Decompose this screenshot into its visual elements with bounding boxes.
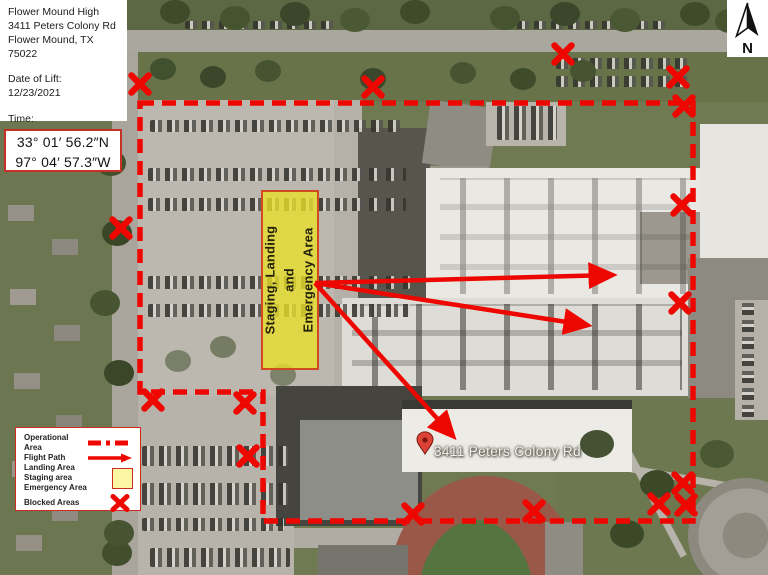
north-indicator: N xyxy=(727,0,768,57)
legend-row-landing: Landing Area Staging area Emergency Area xyxy=(24,463,133,493)
trees xyxy=(580,430,614,458)
site-info-box: Flower Mound High 3411 Peters Colony Rd … xyxy=(0,0,127,121)
street-label: 3411 Peters Colony Rd xyxy=(434,444,581,459)
north-arrow-icon: N xyxy=(727,0,768,57)
x-mark-symbol xyxy=(107,493,133,513)
staging-area-label: Staging, Landing and Emergency Area xyxy=(262,182,319,378)
staging-label-line3: Emergency Area xyxy=(299,182,318,378)
car-row xyxy=(185,21,335,29)
bleachers xyxy=(545,522,583,575)
dash-dot-line-symbol xyxy=(87,439,133,447)
car-row xyxy=(142,518,284,531)
date-of-lift-value: 12/23/2021 xyxy=(8,87,123,101)
roof-units xyxy=(440,178,690,294)
site-address-1: 3411 Peters Colony Rd xyxy=(8,20,123,34)
car-row xyxy=(742,302,754,417)
house-roofs xyxy=(8,205,34,221)
car-row xyxy=(556,58,690,69)
parked-cars xyxy=(497,106,557,140)
date-of-lift-label: Date of Lift: xyxy=(8,73,123,87)
staging-label-line1: Staging, Landing xyxy=(262,182,281,378)
latitude-value: 33° 01′ 56.2″N xyxy=(6,133,120,153)
car-row xyxy=(150,548,290,567)
lift-plan-map: Staging, Landing and Emergency Area 3411… xyxy=(0,0,768,575)
trees xyxy=(160,0,190,24)
staging-label-line2: and xyxy=(281,182,300,378)
site-address-2: Flower Mound, TX 75022 xyxy=(8,34,123,62)
car-row xyxy=(148,168,406,181)
legend-row-flight-path: Flight Path xyxy=(24,453,133,463)
site-name: Flower Mound High xyxy=(8,6,123,20)
legend-label-landing-area: Landing Area Staging area Emergency Area xyxy=(24,463,87,493)
arrow-symbol xyxy=(87,453,133,463)
building-right-white xyxy=(700,124,768,260)
legend-label-blocked-areas: Blocked Areas xyxy=(24,498,79,508)
legend-row-operational: Operational Area xyxy=(24,433,133,453)
north-label: N xyxy=(742,40,753,57)
longitude-value: 97° 04′ 57.3″W xyxy=(6,153,120,173)
legend-label-operational-area: Operational Area xyxy=(24,433,87,453)
legend-row-blocked: Blocked Areas xyxy=(24,493,133,513)
legend-label-flight-path: Flight Path xyxy=(24,453,65,463)
car-row xyxy=(556,76,690,87)
trees xyxy=(150,58,176,80)
coordinates-box: 33° 01′ 56.2″N 97° 04′ 57.3″W xyxy=(4,129,122,172)
yellow-area-symbol xyxy=(112,468,133,489)
car-row xyxy=(142,446,288,466)
time-label: Time: xyxy=(8,113,123,127)
trees xyxy=(210,336,236,358)
legend: Operational Area Flight Path Landing Are… xyxy=(15,427,141,511)
building-white-bottom-edge xyxy=(402,400,632,409)
car-row xyxy=(500,21,670,29)
car-row xyxy=(150,120,400,132)
building-below-track xyxy=(318,545,408,575)
car-row xyxy=(142,483,288,505)
gym-roof xyxy=(300,420,418,520)
